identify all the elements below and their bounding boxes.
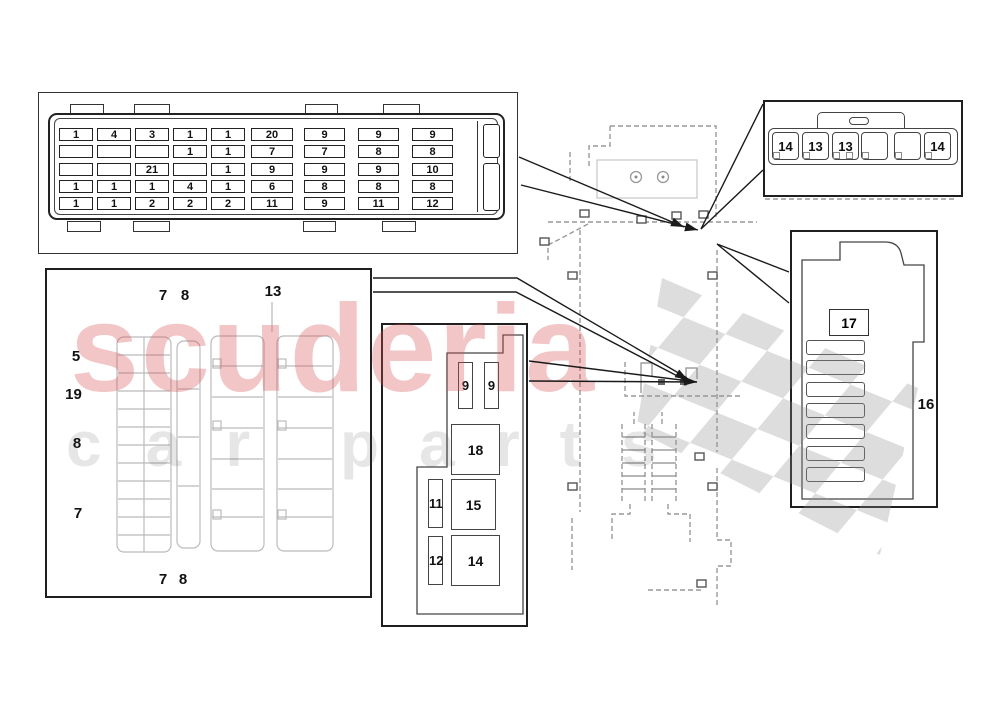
fuse-cell: 9 [304,197,345,210]
fuse-cell: 1 [211,180,245,193]
relay-fuse-slot: 11 [428,479,443,528]
fuse-cell: 9 [251,163,293,176]
mounting-tab [67,221,101,232]
fuse-cell: 9 [304,163,345,176]
mounting-tab [382,221,416,232]
fuse-cell: 20 [251,128,293,141]
relay-17-box: 17 [829,309,869,336]
fuse-slot [806,403,865,418]
fuse-slot [806,382,865,397]
fuse-slot [806,446,865,461]
fuse-cell: 12 [412,197,453,210]
fuse-cell: 4 [173,180,207,193]
fuse-cell: 1 [173,128,207,141]
slot-notch [895,152,902,159]
fuse-cell: 1 [59,128,93,141]
fuse-cell: 1 [59,197,93,210]
fuse-cell: 9 [358,163,399,176]
fuse-cell: 3 [135,128,169,141]
fuse-cell: 1 [59,180,93,193]
fuse-cell: 6 [251,180,293,193]
mounting-tab [303,221,336,232]
fuse-cell: 1 [211,128,245,141]
fuse-cell: 2 [135,197,169,210]
fuse-slot-column [483,163,500,211]
arrowheads [670,218,699,387]
fuse-cell: 4 [97,128,131,141]
fuse-cell: 9 [412,128,453,141]
callout-label: 7 [153,571,173,588]
fuse-grid-row: 1 1 1 4 1 6 8 8 8 [59,180,453,193]
fuse-cell: 1 [173,145,207,158]
fuse-cell: 1 [135,180,169,193]
slot-notch [862,152,869,159]
mounting-tab [133,221,170,232]
fuse-cell [97,145,131,158]
fuse-slot [806,424,865,439]
fuse-cell: 10 [412,163,453,176]
slot-notch [846,152,853,159]
fuse-cell: 11 [251,197,293,210]
slot-notch [803,152,810,159]
relay-slot: 14 [451,535,500,586]
slot-notch [773,152,780,159]
fuse-cell: 11 [358,197,399,210]
parts-diagram-page: 1 4 3 1 1 20 9 9 9 1 1 7 7 8 8 21 1 9 9 … [0,0,1000,727]
relay-slot: 15 [451,479,496,530]
fuse-cell: 1 [211,163,245,176]
callout-label: 8 [173,571,193,588]
fuse-slot-column [483,124,500,158]
fuse-cell: 1 [97,197,131,210]
fuse-cell: 8 [358,145,399,158]
rear-shelf-drawing [597,160,697,198]
fuse-cell: 8 [358,180,399,193]
relay-fuse-slot: 12 [428,536,443,585]
relay-contact [658,379,665,385]
fuse-cell: 2 [211,197,245,210]
fuse-cell: 1 [211,145,245,158]
relay-contact [680,379,687,385]
fuse-cell: 9 [358,128,399,141]
fuse-cell: 2 [173,197,207,210]
fuse-cell: 7 [304,145,345,158]
fuse-cell [173,163,207,176]
fuse-grid-row: 1 4 3 1 1 20 9 9 9 [59,128,453,141]
fuse-cell [59,145,93,158]
fuse-grid-row: 21 1 9 9 9 10 [59,163,453,176]
fuse-grid-row: 1 1 2 2 2 11 9 11 12 [59,197,453,210]
fuse-slot [806,340,865,355]
fuse-grid-row: 1 1 7 7 8 8 [59,145,453,158]
connector-tab-slot [849,117,869,125]
slot-notch [833,152,840,159]
fuse-cell [59,163,93,176]
fuse-cell [135,145,169,158]
watermark-text: scuderia [70,278,596,420]
callout-label: 7 [68,505,88,522]
fuse-cell: 9 [304,128,345,141]
watermark-subtext: car [66,407,294,481]
grid-divider [477,121,478,212]
fuse-cell: 8 [412,180,453,193]
slot-notch [925,152,932,159]
fuse-slot [806,467,865,482]
fuse-cell: 1 [97,180,131,193]
fuse-cell [97,163,131,176]
fuse-cell: 8 [412,145,453,158]
watermark-subtext: parts [340,407,697,481]
fuse-cell: 8 [304,180,345,193]
fuse-cell: 21 [135,163,169,176]
fuse-slot [806,360,865,375]
callout-16: 16 [912,396,940,413]
fuse-cell: 7 [251,145,293,158]
